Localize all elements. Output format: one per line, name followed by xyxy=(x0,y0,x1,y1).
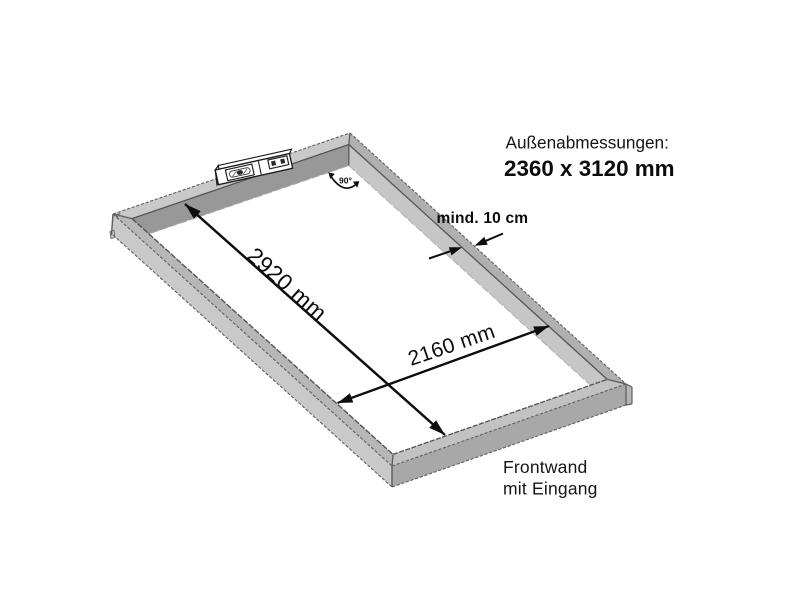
svg-text:Frontwand: Frontwand xyxy=(503,457,587,477)
svg-text:mit Eingang: mit Eingang xyxy=(503,479,598,499)
svg-text:90°: 90° xyxy=(339,176,352,186)
svg-text:mind. 10 cm: mind. 10 cm xyxy=(437,210,529,227)
svg-text:2360 x 3120 mm: 2360 x 3120 mm xyxy=(504,156,675,181)
svg-text:Außenabmessungen:: Außenabmessungen: xyxy=(506,132,669,152)
